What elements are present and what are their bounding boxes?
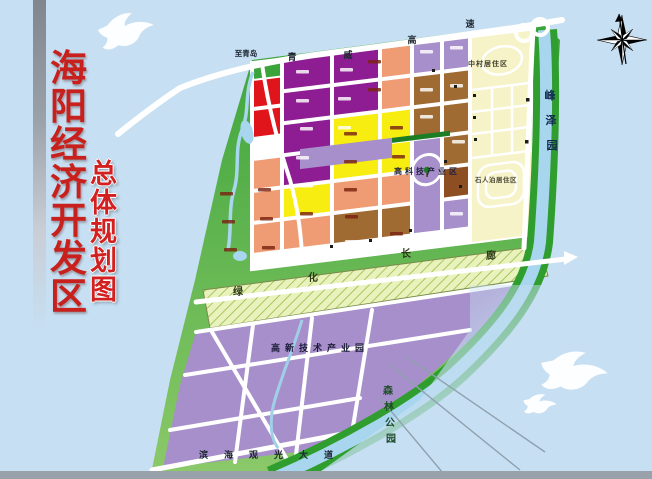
page-title: 海阳经济开发区 — [50, 50, 87, 316]
label-corridor-char: 廊 — [486, 249, 496, 262]
dove-icon — [96, 10, 156, 51]
label-hightech-zone: 高科技产业区 — [394, 166, 460, 176]
label-coastal-avenue: 滨海观光大道 — [199, 449, 349, 460]
label-to-qingdao: 至青岛 — [235, 48, 258, 58]
zone-salmon-parcel — [382, 46, 410, 77]
label-corridor-char: 长 — [401, 247, 412, 260]
label-expressway-char: 威 — [343, 49, 352, 60]
label-corridor-char: 绿 — [233, 285, 244, 298]
label-expressway-char: 高 — [407, 34, 416, 45]
pond — [233, 251, 247, 261]
label-forest-park-char: 森 — [382, 384, 394, 397]
label-forest-park-char: 公 — [385, 417, 395, 429]
label-hightech-park: 高新技术产业园 — [271, 342, 369, 353]
left-gray-bar — [33, 0, 46, 330]
label-forest-park-char: 林 — [384, 400, 395, 413]
label-expressway-char: 青 — [287, 51, 296, 62]
label-zhongcun-residential: 中村居住区 — [468, 59, 508, 68]
label-corridor-char: 化 — [308, 271, 318, 284]
compass-icon — [597, 14, 647, 65]
zone-lavender-parcel — [414, 42, 440, 73]
plan-poster: 至青岛 青 威 高 速 绿 化 长 廊 中村居住区 石人泊居住区 高科技产业区 … — [0, 0, 652, 479]
label-expressway-char: 速 — [465, 18, 474, 29]
label-fengzeyuan-char: 园 — [547, 139, 558, 152]
page-subtitle: 总体规划图 — [90, 160, 117, 305]
label-fengzeyuan-char: 峰 — [545, 88, 557, 102]
road-arrow — [564, 251, 578, 265]
label-shirenpo-residential: 石人泊居住区 — [474, 175, 517, 184]
bottom-gray-bar — [0, 471, 652, 479]
label-forest-park-char: 园 — [386, 433, 396, 445]
label-fengzeyuan-char: 泽 — [546, 114, 557, 127]
